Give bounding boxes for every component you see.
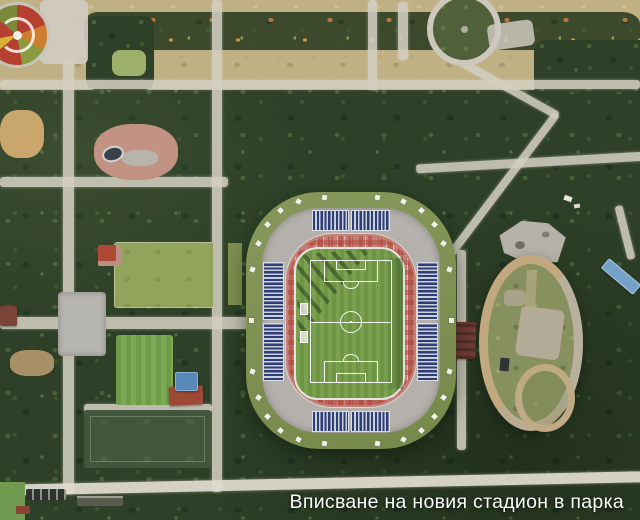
stadium-roof-panel-north-west: [312, 210, 349, 231]
brown-roof-building-velodrome: [454, 322, 476, 360]
training-field-north-ext: [228, 243, 242, 305]
team-bench-1: [300, 303, 308, 315]
training-field-middle: [116, 335, 173, 405]
stadium-edge-marker: [375, 194, 381, 200]
stadium-render: [246, 192, 456, 449]
center-spot: [350, 321, 352, 323]
garden-fountain: [461, 26, 468, 33]
goal-area-top: [336, 260, 366, 270]
football-pitch: [294, 247, 405, 400]
stadium-edge-marker: [264, 221, 271, 228]
grass-corner: [0, 482, 25, 520]
stadium-edge-marker: [255, 394, 262, 401]
stadium-edge-marker: [250, 266, 256, 272]
park-path-vertical-top: [368, 0, 377, 90]
stadium-edge-marker: [375, 441, 381, 447]
parked-cars-row: [26, 489, 66, 500]
penalty-arc-bottom: [343, 354, 359, 361]
park-path-horizontal-2: [0, 177, 228, 187]
stadium-edge-marker: [400, 198, 407, 205]
stadium-roof-panel-west-south: [263, 323, 284, 381]
clubhouse-building: [167, 369, 205, 406]
brown-roof-building: [0, 306, 17, 326]
park-path-vertical-west: [63, 58, 74, 494]
paved-courts: [58, 292, 106, 356]
stadium-edge-marker: [449, 318, 454, 323]
sandy-clearing: [0, 110, 44, 158]
park-path-horizontal-3: [0, 317, 248, 329]
stadium-edge-marker: [295, 198, 302, 205]
stadium-roof-panel-west-north: [263, 262, 284, 320]
penalty-arc-top: [343, 282, 359, 289]
velodrome-inner-oval: [515, 364, 575, 432]
photo-caption: Вписване на новия стадион в парка: [290, 491, 624, 514]
pitch-markings: [310, 260, 392, 383]
stadium-edge-marker: [446, 368, 452, 374]
red-roof-building-north: [98, 245, 121, 266]
park-path-vertical-garden: [398, 2, 408, 60]
stadium-edge-marker: [431, 221, 438, 228]
stadium-edge-marker: [277, 427, 284, 434]
stadium-edge-marker: [249, 318, 254, 323]
stadium-edge-marker: [431, 413, 438, 420]
dirt-patch: [10, 350, 54, 376]
velodrome-dirt-patch-1: [515, 305, 566, 361]
stadium-edge-marker: [255, 240, 262, 247]
stadium-edge-marker: [321, 441, 327, 447]
long-shed-building: [77, 496, 123, 506]
stadium-roof-panel-east-south: [417, 323, 438, 381]
small-green-clearing: [112, 50, 146, 76]
park-path-horizontal-1: [0, 80, 640, 89]
stadium-edge-marker: [277, 207, 284, 214]
stadium-edge-marker: [446, 266, 452, 272]
blue-roof-annex: [175, 372, 198, 391]
velodrome-dirt-trail: [525, 270, 537, 310]
team-bench-2: [300, 331, 308, 343]
velodrome-track: [479, 255, 583, 431]
stadium-roof-panel-east-north: [417, 262, 438, 320]
velodrome-dirt-patch-2: [504, 290, 526, 306]
training-field-south: [84, 410, 211, 468]
bare-ground-clearing: [94, 124, 178, 180]
stadium-edge-marker: [264, 413, 271, 420]
small-red-roofs: [16, 506, 30, 514]
stadium-roof-panel-south-west: [312, 411, 349, 432]
stadium-edge-marker: [321, 194, 327, 200]
dark-vehicle: [499, 358, 509, 372]
stadium-edge-marker: [440, 394, 447, 401]
stadium-edge-marker: [440, 240, 447, 247]
aerial-photo-scene: Вписване на новия стадион в парка: [0, 0, 640, 520]
goal-area-bottom: [336, 373, 366, 383]
stadium-edge-marker: [418, 427, 425, 434]
stadium-edge-marker: [295, 436, 302, 443]
stadium-roof-panel-south-east: [351, 411, 390, 432]
training-field-north: [114, 242, 214, 308]
gravel-center: [122, 150, 158, 166]
playground-center: [13, 31, 22, 40]
stadium-edge-marker: [400, 436, 407, 443]
stadium-edge-marker: [418, 207, 425, 214]
field-south-markings: [90, 416, 205, 462]
stadium-roof-panel-north-east: [351, 210, 390, 231]
stadium-edge-marker: [250, 368, 256, 374]
